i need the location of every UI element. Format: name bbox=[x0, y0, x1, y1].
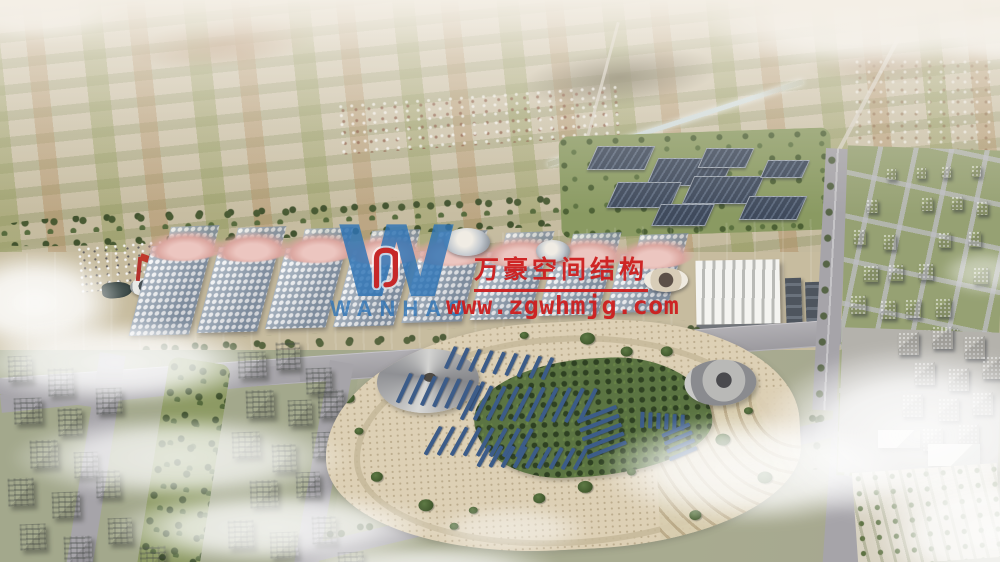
city-building bbox=[288, 400, 313, 427]
city-building bbox=[951, 196, 963, 210]
solar-panel-array bbox=[587, 146, 656, 170]
city-building bbox=[916, 167, 926, 179]
city-building bbox=[276, 342, 301, 371]
solar-panel-array bbox=[739, 196, 808, 220]
city-building bbox=[880, 300, 896, 319]
city-building bbox=[941, 166, 951, 178]
city-building bbox=[850, 295, 866, 314]
solar-panel-array bbox=[698, 148, 755, 168]
park-tree bbox=[660, 346, 672, 356]
city-building bbox=[918, 263, 933, 280]
city-building bbox=[64, 536, 93, 562]
city-building bbox=[8, 478, 35, 507]
panel-strip bbox=[640, 412, 645, 428]
city-building bbox=[52, 492, 81, 519]
oval-pavilion-east bbox=[644, 268, 688, 292]
central-hub-dome bbox=[444, 228, 490, 256]
city-building bbox=[905, 299, 921, 318]
panel-strip bbox=[648, 412, 653, 428]
city-building bbox=[971, 165, 981, 177]
city-building bbox=[921, 197, 933, 211]
park-tree bbox=[533, 493, 545, 503]
city-building bbox=[883, 234, 896, 250]
city-building bbox=[938, 232, 951, 248]
aerial-render-exhibition-complex: W WANHAO 万豪空间结构 www.zgwhmjg.com bbox=[0, 0, 1000, 562]
pleated-roof-hall bbox=[695, 259, 780, 330]
park-tree bbox=[620, 346, 632, 356]
city-building bbox=[20, 524, 47, 551]
cloud bbox=[10, 415, 350, 500]
city-building bbox=[853, 229, 866, 245]
hub-dome-east bbox=[536, 240, 570, 262]
city-building bbox=[246, 390, 275, 419]
city-building bbox=[866, 199, 878, 213]
city-building bbox=[886, 168, 896, 180]
park-tree bbox=[371, 471, 383, 481]
city-building bbox=[968, 231, 981, 247]
city-building bbox=[14, 398, 43, 425]
city-building bbox=[935, 298, 951, 317]
park-tree bbox=[342, 393, 354, 403]
solar-panel-array bbox=[760, 160, 810, 178]
city-building bbox=[888, 264, 903, 281]
city-building bbox=[976, 201, 988, 215]
city-building bbox=[863, 265, 878, 282]
cloud bbox=[430, 505, 590, 555]
